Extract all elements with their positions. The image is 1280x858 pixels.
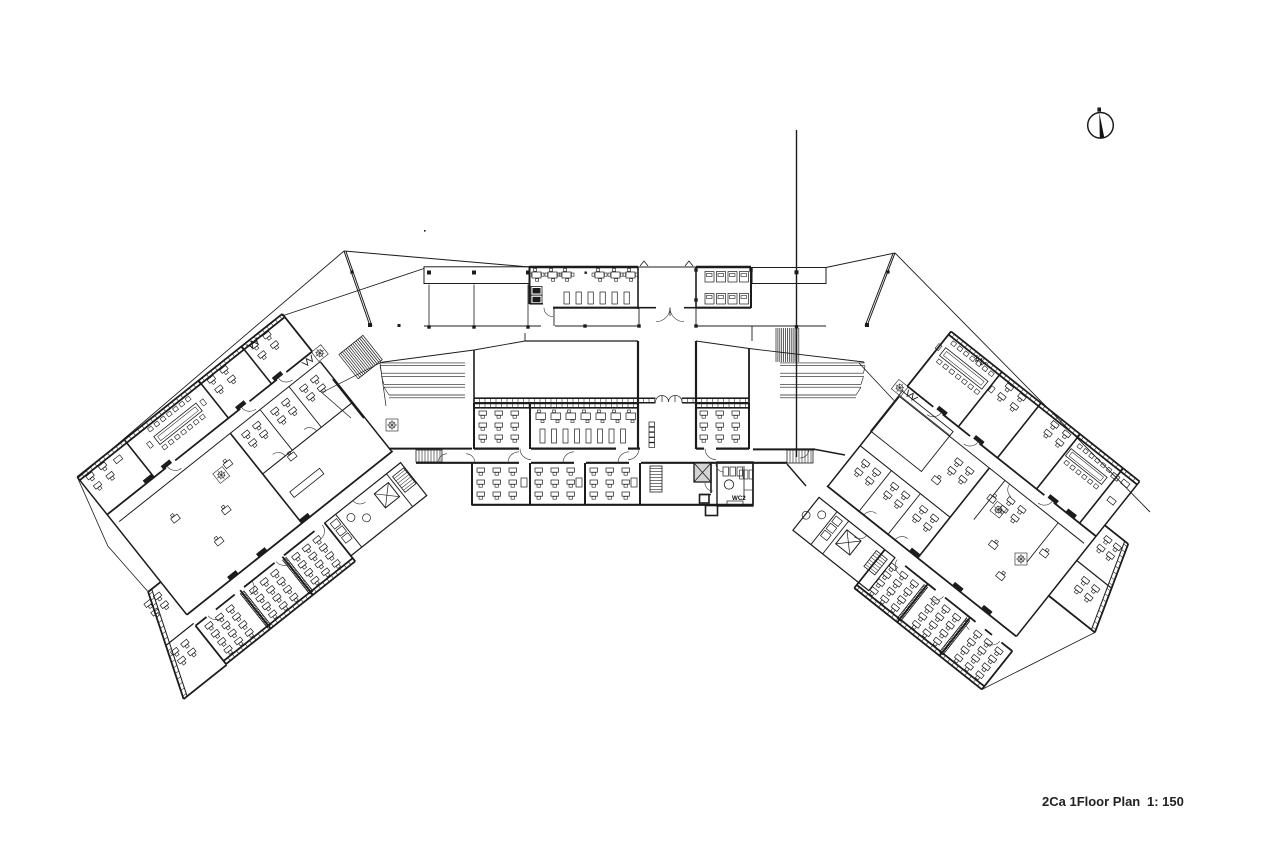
svg-text:1: 150: 1: 150 (1147, 794, 1184, 809)
svg-text:2Ca 1Floor Plan: 2Ca 1Floor Plan (1042, 794, 1140, 809)
